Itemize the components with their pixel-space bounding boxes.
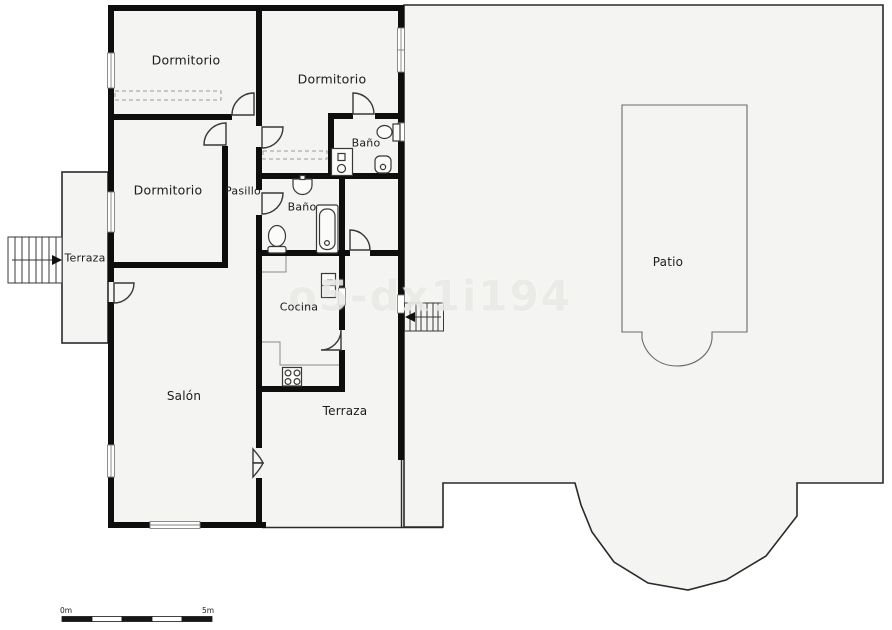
washbasin-tap-icon xyxy=(300,176,305,180)
shower-drain-icon xyxy=(338,154,345,161)
label-terraza-left: Terraza xyxy=(64,252,105,265)
label-dormitorio-top-mid: Dormitorio xyxy=(298,72,367,87)
label-dormitorio-top-left: Dormitorio xyxy=(152,53,221,68)
label-pasillo: Pasillo xyxy=(225,185,261,198)
label-bano-mid: Baño xyxy=(288,201,317,214)
label-dormitorio-left: Dormitorio xyxy=(134,183,203,198)
floorplan-page: o5-dx1i194 Dormitorio Dormitorio Dormito… xyxy=(0,0,892,630)
watermark-text: o5-dx1i194 xyxy=(288,272,572,321)
stairs-left xyxy=(8,237,62,283)
label-terraza-bottom: Terraza xyxy=(323,404,368,418)
label-bano-top: Baño xyxy=(352,137,381,150)
scale-bar xyxy=(62,617,212,622)
scale-max-label: 5m xyxy=(202,606,214,615)
toilet-tank-icon xyxy=(268,247,286,254)
washbasin-icon xyxy=(293,179,312,195)
scale-min-label: 0m xyxy=(60,606,72,615)
shower-siphon-icon xyxy=(338,165,346,173)
bathtub-drain-icon xyxy=(325,241,330,246)
bidet-drain-icon xyxy=(380,164,385,169)
toilet-tank-icon xyxy=(393,124,400,141)
label-cocina: Cocina xyxy=(280,301,318,314)
label-patio: Patio xyxy=(653,255,683,269)
label-salon: Salón xyxy=(167,389,201,403)
toilet-icon xyxy=(269,226,286,247)
